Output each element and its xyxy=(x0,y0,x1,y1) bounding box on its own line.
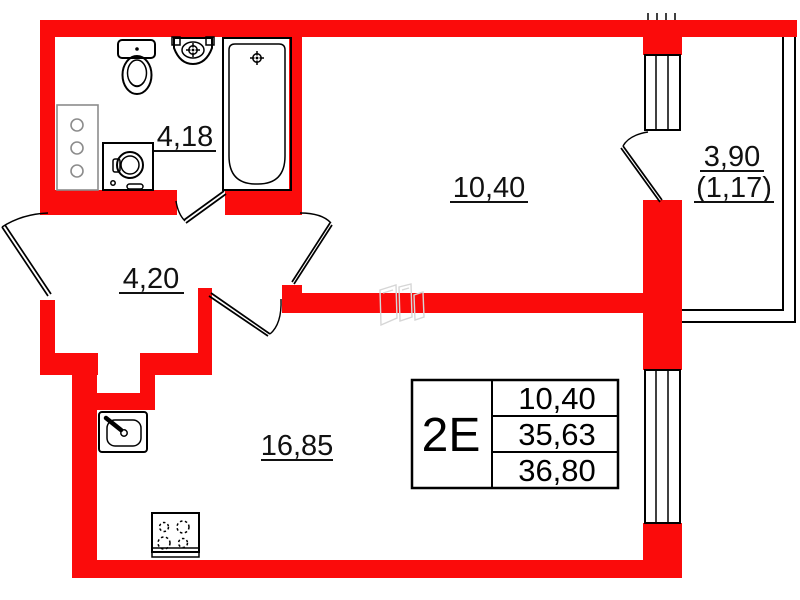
unit-total-area: 35,63 xyxy=(518,417,596,452)
stove-icon xyxy=(152,513,199,557)
balcony-reduced-area-label: (1,17) xyxy=(696,172,772,204)
faucet-crosshair-icon xyxy=(250,51,264,65)
wall-segment-bath-bottom-left xyxy=(40,190,177,215)
wall-segment-separator xyxy=(282,293,655,313)
bathroom-door-icon xyxy=(176,191,226,223)
wall-segment-right-mid xyxy=(643,200,682,370)
bathtub-icon xyxy=(223,38,291,190)
cabinet-shelves-icon xyxy=(57,105,98,190)
toilet-icon xyxy=(118,40,155,94)
faucet-crosshair-icon xyxy=(186,43,200,57)
wash-basin-icon xyxy=(172,37,214,64)
wall-segment-hall-right xyxy=(198,288,212,375)
kitchen-sink-icon xyxy=(99,412,147,452)
upper-floor-tick-marks xyxy=(648,13,675,20)
window-icon-kitchen xyxy=(645,370,680,523)
floor-plan: 4,18 4,20 10,40 16,85 3,90 (1,17) 2Е 10,… xyxy=(0,0,800,600)
washing-machine-icon xyxy=(103,143,153,190)
unit-info-table: 2Е 10,40 35,63 36,80 xyxy=(412,380,618,488)
kitchen-area-label: 16,85 xyxy=(261,430,334,462)
wall-segment-step-left xyxy=(40,353,98,375)
room-door-icon xyxy=(292,213,332,284)
wall-segment-right-pier-top xyxy=(643,37,682,55)
balcony-area-label: 3,90 xyxy=(704,141,760,173)
entrance-door-icon xyxy=(2,213,51,296)
bathroom-fixtures xyxy=(57,37,291,190)
wall-segment-left-upper xyxy=(40,20,55,211)
kitchen-fixtures xyxy=(99,412,199,557)
hallway-area-label: 4,20 xyxy=(123,263,179,295)
unit-type-code: 2Е xyxy=(422,409,481,462)
bathroom-area-label: 4,18 xyxy=(157,121,213,153)
room-area-label: 10,40 xyxy=(453,172,526,204)
unit-total-area-with-balcony: 36,80 xyxy=(518,453,596,488)
wall-segment-top xyxy=(40,20,797,37)
wall-segment-bottom xyxy=(72,560,682,578)
walls xyxy=(40,20,797,578)
window-icon-room xyxy=(645,55,680,130)
kitchen-door-icon xyxy=(209,293,281,336)
unit-living-area: 10,40 xyxy=(518,381,596,416)
balcony-door-icon xyxy=(621,132,662,202)
